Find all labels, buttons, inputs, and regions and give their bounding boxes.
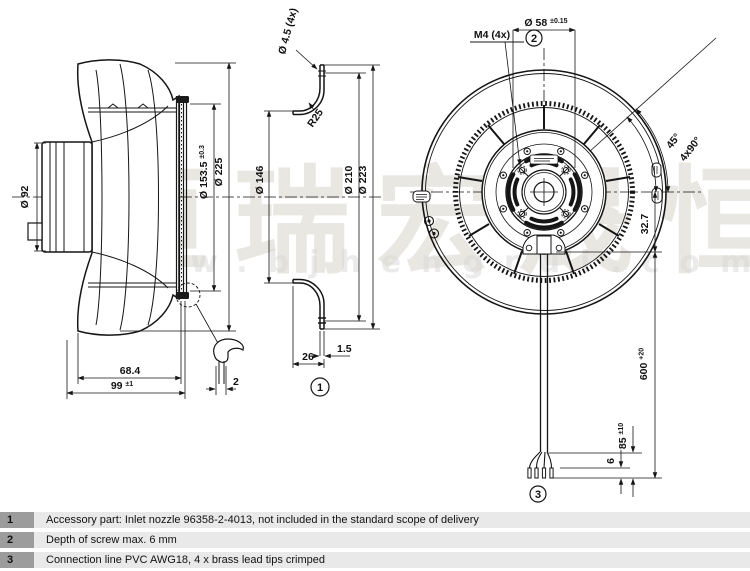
clip-detail: 2 xyxy=(176,283,243,395)
d92-label: Ø 92 xyxy=(19,185,31,208)
label-sticker-right-top xyxy=(652,163,661,177)
dimension-85: 85 ±10 xyxy=(548,423,642,497)
holes-leader xyxy=(296,50,317,69)
m4-label: M4 (4x) xyxy=(474,29,510,41)
legend-no-2: 2 xyxy=(0,532,34,548)
item2-number: 2 xyxy=(531,33,537,45)
inlet-clip-top xyxy=(176,96,189,103)
d153-value: Ø 153.5 xyxy=(198,161,210,199)
lead-wires xyxy=(530,452,552,468)
d210-label: Ø 210 xyxy=(343,166,355,195)
dimension-600: 600 +20 xyxy=(638,252,655,478)
crimped-tips xyxy=(528,468,553,478)
cable600-tol: +20 xyxy=(639,348,646,360)
clip-thickness-label: 2 xyxy=(233,376,239,388)
section-view: Ø 4.5 (4x) R25 Ø 146 Ø 210 Ø 223 xyxy=(254,7,380,396)
legend-row-1: 1 Accessory part: Inlet nozzle 96358-2-4… xyxy=(0,512,750,528)
fan-technical-drawing: Ø 92 Ø 153.5 ±0.3 Ø 225 68 xyxy=(0,0,750,510)
inlet-clip-bottom xyxy=(176,292,189,299)
legend-row-2: 2 Depth of screw max. 6 mm xyxy=(0,532,750,548)
label-sticker-left xyxy=(413,191,430,202)
strip85-value: 85 xyxy=(617,437,629,449)
item3-balloon: 3 xyxy=(530,486,546,502)
d146-label: Ø 146 xyxy=(254,166,266,195)
dimension-d153: Ø 153.5 ±0.3 xyxy=(190,104,221,291)
d153-tol: ±0.3 xyxy=(199,145,206,159)
tip6-label: 6 xyxy=(605,458,617,464)
d223-label: Ø 223 xyxy=(357,166,369,195)
connection-cable xyxy=(528,254,553,478)
strip85-label: 85 ±10 xyxy=(617,423,629,449)
depth26-label: 26 xyxy=(302,351,314,363)
w99-value: 99 xyxy=(111,380,123,392)
off327-label: 32.7 xyxy=(639,214,651,235)
d153-label: Ø 153.5 ±0.3 xyxy=(198,145,210,199)
cable600-label: 600 +20 xyxy=(638,348,650,380)
d225-label: Ø 225 xyxy=(213,158,225,187)
nozzle-profile-top xyxy=(293,65,324,115)
strip85-tol: ±10 xyxy=(618,423,625,435)
item3-number: 3 xyxy=(535,489,541,501)
legend-no-3: 3 xyxy=(0,552,34,568)
w99-tol: ±1 xyxy=(125,381,133,388)
clip-shape xyxy=(214,339,244,362)
item1-balloon: 1 xyxy=(311,378,329,396)
w99-label: 99 ±1 xyxy=(111,380,133,392)
r25-label: R25 xyxy=(305,107,326,130)
d58-tol: ±0.15 xyxy=(550,18,568,25)
item1-number: 1 xyxy=(317,382,323,394)
drawing-page: 恒瑞宏晟恒 www.bjhengrui.com xyxy=(0,0,750,571)
t15-label: 1.5 xyxy=(337,343,352,355)
label-sticker-right-bottom xyxy=(652,188,662,203)
d58-value: Ø 58 xyxy=(524,17,547,29)
legend-text-3: Connection line PVC AWG18, 4 x brass lea… xyxy=(34,552,750,568)
legend-table: 1 Accessory part: Inlet nozzle 96358-2-4… xyxy=(0,512,750,571)
angle45-label: 45° xyxy=(664,131,683,151)
side-view: Ø 92 Ø 153.5 ±0.3 Ø 225 68 xyxy=(12,60,384,399)
nozzle-profile-bottom xyxy=(293,280,326,330)
legend-text-1: Accessory part: Inlet nozzle 96358-2-401… xyxy=(34,512,750,528)
dimension-t15: 1.5 xyxy=(311,331,352,356)
motor-terminal-stub xyxy=(28,223,42,240)
w684-label: 68.4 xyxy=(120,365,141,377)
motor-nameplate xyxy=(530,155,558,164)
legend-row-3: 3 Connection line PVC AWG18, 4 x brass l… xyxy=(0,552,750,568)
d58-label: Ø 58 ±0.15 xyxy=(524,17,567,29)
holes-label: Ø 4.5 (4x) xyxy=(276,7,300,56)
front-view: Ø 58 ±0.15 M4 (4x) 2 45° 4x90° xyxy=(410,17,716,502)
legend-text-2: Depth of screw max. 6 mm xyxy=(34,532,750,548)
legend-no-1: 1 xyxy=(0,512,34,528)
cable-exit-clamp xyxy=(523,235,565,254)
dimension-6: 6 xyxy=(552,450,662,494)
cable600-value: 600 xyxy=(638,362,650,380)
impeller-silhouette xyxy=(78,60,179,335)
flange-hole xyxy=(318,71,326,76)
